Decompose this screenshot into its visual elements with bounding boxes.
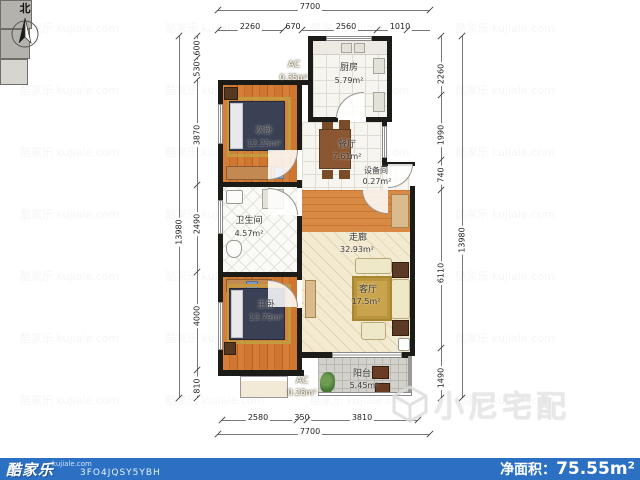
bedroom2-pillows — [230, 103, 243, 149]
window — [218, 200, 223, 234]
wall — [297, 308, 302, 376]
watermark-tile: 酷家乐 kujiale.com — [20, 206, 119, 234]
dim-bottom-seg: 3810 — [350, 413, 374, 422]
dim-line-right-segments — [441, 36, 442, 398]
watermark-tile: 酷家乐 kujiale.com — [20, 144, 119, 172]
net-area-label: 净面积： — [500, 459, 556, 479]
window — [218, 104, 223, 144]
room-label-corridor: 走廊 — [349, 233, 367, 243]
kujiale-logo: 酷家乐 — [6, 459, 54, 480]
wall — [297, 80, 302, 150]
watermark-tile: 酷家乐 kujiale.com — [20, 392, 119, 420]
dim-tick — [426, 430, 433, 437]
wall — [308, 117, 338, 122]
net-area: 净面积： 75.55m² — [500, 458, 635, 480]
floorplan-canvas: 酷家乐 kujiale.com酷家乐 kujiale.com酷家乐 kujial… — [0, 0, 640, 480]
dim-left-seg: 4000 — [193, 304, 202, 328]
net-area-value: 75.55m² — [556, 459, 635, 479]
dining-chair — [322, 170, 333, 179]
room-area-ac-top: 0.35m² — [280, 73, 309, 83]
dim-tick — [426, 6, 433, 13]
kitchen-fridge — [373, 58, 385, 74]
balcony-slider-window — [332, 352, 402, 358]
kitchen-sink — [354, 43, 365, 53]
dim-left-seg: 810 — [193, 376, 202, 395]
living-armchair — [361, 322, 386, 340]
watermark-tile: 酷家乐 kujiale.com — [456, 20, 555, 48]
room-label-bedroom2: 次卧 — [255, 126, 273, 136]
room-label-ac-top: AC — [288, 60, 300, 70]
compass-north-label: 北 — [6, 3, 44, 15]
dim-bottom-total: 7700 — [298, 427, 322, 436]
watermark-tile: 酷家乐 kujiale.com — [456, 330, 555, 358]
dim-left-seg: 3870 — [193, 123, 202, 147]
footer-bar: 酷家乐 kujiale.com 3FO4JQSY5YBH 净面积： 75.55m… — [0, 458, 640, 480]
balcony-chair — [372, 366, 389, 379]
kitchen-sink — [341, 43, 352, 53]
room-area-living: 17.5m² — [352, 297, 381, 307]
room-label-dining: 餐厅 — [338, 140, 356, 150]
compass: 北 — [6, 3, 44, 57]
dim-bottom-seg: 2580 — [246, 413, 270, 422]
dim-right-total: 13980 — [458, 225, 467, 254]
entry-shoe-cabinet — [391, 194, 409, 228]
brand-watermark-text: 小尼宅配 — [434, 382, 570, 426]
wall — [223, 272, 297, 277]
living-sofa — [391, 279, 410, 319]
dim-line-bottom-total — [218, 434, 430, 435]
wall — [297, 216, 302, 280]
balcony-glazing — [318, 392, 412, 396]
plan-id: 3FO4JQSY5YBH — [80, 468, 161, 478]
watermark-tile: 酷家乐 kujiale.com — [456, 206, 555, 234]
wall — [308, 36, 313, 122]
room-area-bedroom1: 13.79m² — [249, 313, 283, 323]
room-label-bedroom1: 主卧 — [257, 300, 275, 310]
living-side-table — [392, 320, 409, 336]
dim-top-total: 7700 — [298, 2, 322, 11]
room-label-bathroom: 卫生间 — [235, 216, 262, 226]
balcony-side-wall — [408, 356, 412, 396]
bedroom1-pillows — [231, 290, 243, 338]
wall — [410, 186, 415, 356]
dim-left-total: 13980 — [175, 217, 184, 246]
bedroom2-cabinet — [224, 87, 238, 100]
wall — [297, 180, 302, 188]
bedroom2-dresser — [226, 166, 272, 180]
dim-right-seg: 2260 — [437, 62, 446, 86]
watermark-tile: 酷家乐 kujiale.com — [456, 392, 555, 420]
living-loveseat — [355, 258, 392, 274]
watermark-tile: 酷家乐 kujiale.com — [20, 268, 119, 296]
room-area-bathroom: 4.57m² — [235, 229, 264, 239]
wall — [366, 117, 392, 122]
dim-line-right-total — [462, 36, 463, 398]
watermark-tile: 酷家乐 kujiale.com — [20, 82, 119, 110]
dining-chair — [339, 120, 350, 129]
watermark-tile: 酷家乐 kujiale.com — [456, 144, 555, 172]
room-area-dining: 7.61m² — [333, 152, 362, 162]
room-label-kitchen: 厨房 — [340, 63, 358, 73]
bathroom-toilet — [226, 240, 242, 258]
window — [218, 302, 223, 350]
dim-tick — [458, 394, 465, 401]
room-label-living: 客厅 — [359, 285, 377, 295]
kitchen-unit — [373, 92, 385, 112]
dim-top-seg: 2560 — [334, 22, 358, 31]
room-label-ac-bottom: AC — [296, 376, 308, 386]
watermark-tile: 酷家乐 kujiale.com — [20, 330, 119, 358]
compass-rose-icon — [9, 15, 41, 51]
living-tv-stand — [305, 280, 316, 318]
dim-right-seg: 1990 — [437, 123, 446, 147]
watermark-tile: 酷家乐 kujiale.com — [456, 82, 555, 110]
dim-right-seg: 1490 — [437, 366, 446, 390]
dim-right-seg: 740 — [437, 165, 446, 184]
balcony-plant — [320, 372, 335, 393]
dim-left-seg: 2490 — [193, 212, 202, 236]
dim-top-seg: 2260 — [238, 22, 262, 31]
wall — [387, 36, 392, 122]
dim-tick — [175, 394, 182, 401]
room-area-balcony: 5.45m² — [350, 381, 379, 391]
room-area-kitchen: 5.79m² — [335, 76, 364, 86]
bay-window — [240, 376, 288, 398]
window — [326, 36, 372, 41]
dim-line-top-total — [218, 10, 430, 11]
bathroom-vanity — [226, 190, 243, 204]
dim-right-seg: 6110 — [437, 261, 446, 285]
room-area-ac-bottom: 0.28m² — [288, 388, 317, 398]
wall — [223, 182, 297, 187]
dim-tick — [437, 394, 444, 401]
dining-chair — [339, 170, 350, 179]
dim-left-seg: 530 — [193, 59, 202, 78]
living-cabinet — [398, 338, 410, 351]
room-area-corridor: 32.93m² — [340, 245, 374, 255]
room-label-equipment: 设备间 — [364, 166, 388, 176]
living-side-table — [392, 262, 409, 278]
room-area-bedroom2: 12.25m² — [247, 139, 281, 149]
room-label-balcony: 阳台 — [353, 369, 371, 379]
bedroom1-nightstand — [224, 342, 236, 355]
watermark-tile: 酷家乐 kujiale.com — [456, 268, 555, 296]
window — [382, 126, 387, 158]
kujiale-domain: kujiale.com — [52, 460, 92, 468]
room-area-equipment: 0.27m² — [363, 177, 392, 187]
dim-tick — [414, 416, 421, 423]
equipment-room-box — [0, 59, 28, 85]
